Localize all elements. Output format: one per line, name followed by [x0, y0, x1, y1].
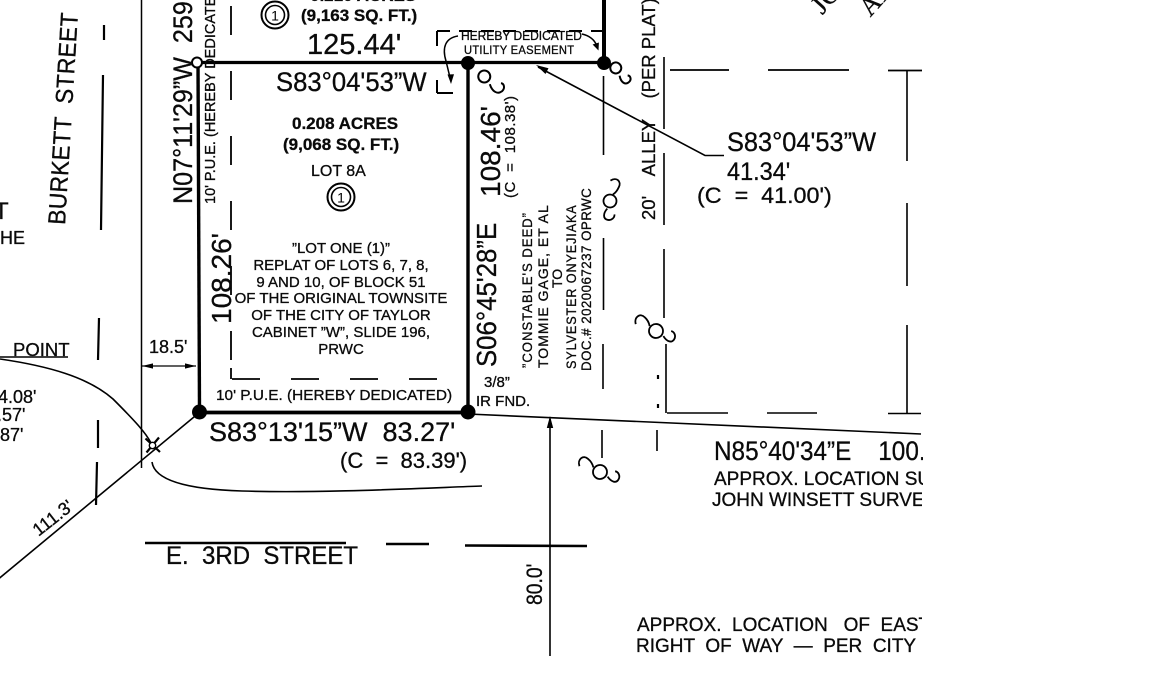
svg-text:1: 1: [337, 190, 345, 206]
svg-text:1: 1: [271, 8, 279, 24]
